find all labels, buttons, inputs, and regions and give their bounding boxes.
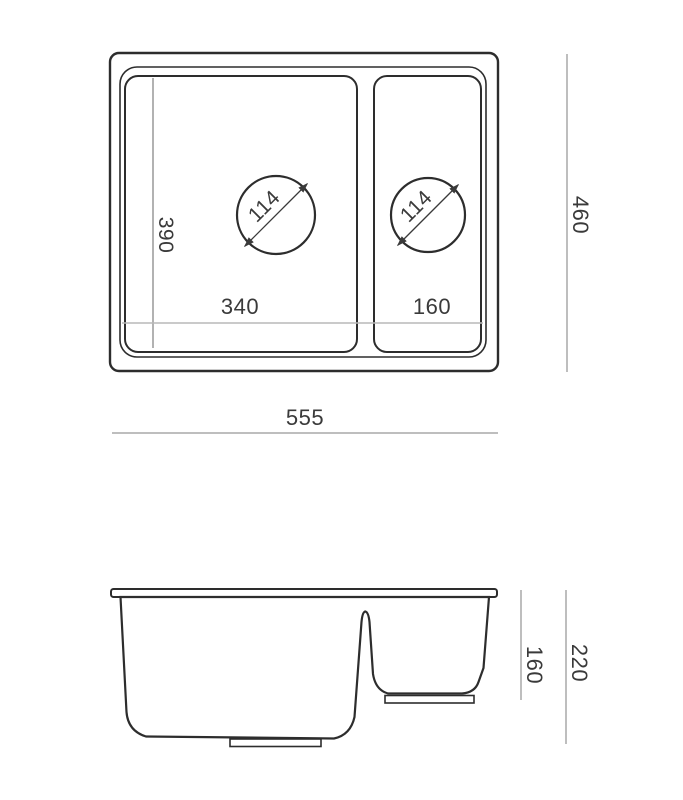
small-bowl-depth-label: 160 — [522, 646, 547, 684]
side-view-flange — [111, 589, 497, 597]
main-bowl-width-label: 340 — [221, 294, 259, 319]
overall-height-label: 220 — [567, 644, 592, 682]
sink-technical-drawing-page: 390 340 160 114 114 460 555 — [0, 0, 683, 800]
small-bowl-width-label: 160 — [413, 294, 451, 319]
overall-width-label: 555 — [286, 405, 324, 430]
sink-side-view: 160 220 — [111, 589, 592, 747]
bowl-length-label: 390 — [154, 217, 177, 254]
top-view-overall-dimensions: 460 555 — [112, 54, 593, 433]
small-bowl-drain-recess — [385, 696, 474, 704]
small-drain-diameter-label: 114 — [396, 186, 437, 227]
sink-technical-drawing: 390 340 160 114 114 460 555 — [0, 0, 683, 800]
sink-top-view: 390 340 160 114 114 — [110, 53, 498, 371]
overall-depth-label: 460 — [568, 196, 593, 234]
main-drain-diameter-label: 114 — [244, 186, 285, 227]
side-view-body — [121, 597, 490, 739]
main-bowl-drain-recess — [230, 739, 321, 747]
